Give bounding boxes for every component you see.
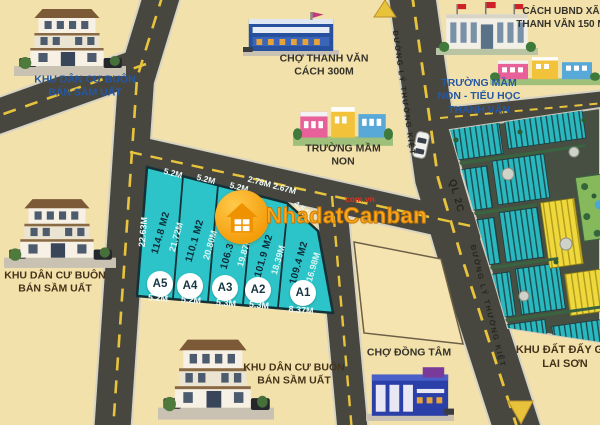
market-thanh-van-image (243, 11, 339, 57)
label-line: TRƯỜNG MẦM (438, 77, 521, 90)
label-line: LAI SƠN (516, 357, 600, 371)
label-residential-left: KHU DÂN CƯ BUÔN BÁN SẦM UẤT (4, 270, 105, 297)
label-line: KHU DÂN CƯ BUÔN (34, 74, 135, 87)
label-residential-bottom: KHU DÂN CƯ BUÔN BÁN SẦM UẤT (243, 362, 344, 389)
label-khu-dat-lai-son: KHU ĐẤT ĐẤY GIÁ LAI SƠN (516, 343, 600, 371)
label-line: BÁN SẦM UẤT (243, 375, 344, 388)
house-glyph (222, 197, 262, 237)
label-line: KHU ĐẤT ĐẤY GIÁ (516, 343, 600, 357)
label-line: CÁCH 300M (280, 66, 369, 79)
school-mam-non-image (293, 100, 393, 147)
label-line: BÁN SẦM UẤT (4, 283, 105, 296)
villa-image-top-left (14, 6, 126, 78)
market-dong-tam-image (366, 360, 454, 422)
plot-a5-bottom-width: 5.2M (148, 292, 169, 304)
label-line: CÁCH UBND XÃ (516, 6, 600, 19)
villa-image-left (4, 196, 116, 270)
label-line: CHỢ ĐỒNG TÂM (367, 346, 451, 359)
label-line: NON - TIỂU HỌC (438, 90, 521, 103)
label-line: CHỢ THANH VĂN (280, 53, 369, 66)
label-truong-thanh-van: TRƯỜNG MẦM NON - TIỂU HỌC THANH VĂN (438, 77, 521, 117)
label-ubnd-xa: CÁCH UBND XÃ THANH VĂN 150 M (516, 6, 600, 32)
plot-a1-bottom-width: 8.37M (288, 304, 314, 316)
label-line: BÁN SẦM UẤT (34, 87, 135, 100)
plot-a4-bottom-width: 5.2M (181, 294, 202, 306)
label-line: KHU DÂN CƯ BUÔN (243, 362, 344, 375)
label-cho-thanh-van: CHỢ THANH VĂN CÁCH 300M (280, 53, 369, 80)
plot-a2-bottom-width: 5.3M (249, 299, 270, 311)
label-line: TRƯỜNG MẦM (305, 143, 380, 156)
label-residential-top-left: KHU DÂN CƯ BUÔN BÁN SẦM UẤT (34, 74, 135, 101)
plot-a3-bottom-width: 5.3M (216, 297, 237, 309)
map-canvas: KHU DÂN CƯ BUÔN BÁN SẦM UẤT CHỢ THANH VĂ… (0, 0, 600, 425)
label-line: THANH VĂN (438, 104, 521, 117)
label-line: NON (305, 156, 380, 169)
brand-name: NhadatCanban (266, 203, 427, 229)
house-logo-icon (215, 190, 269, 244)
label-line: THANH VĂN 150 M (516, 19, 600, 32)
label-truong-mam-non: TRƯỜNG MẦM NON (305, 143, 380, 170)
plot-a1-badge: A1 (290, 280, 316, 306)
label-line: KHU DÂN CƯ BUÔN (4, 270, 105, 283)
brand-domain: com.vn (345, 194, 375, 204)
label-cho-dong-tam: CHỢ ĐỒNG TÂM (367, 346, 451, 359)
